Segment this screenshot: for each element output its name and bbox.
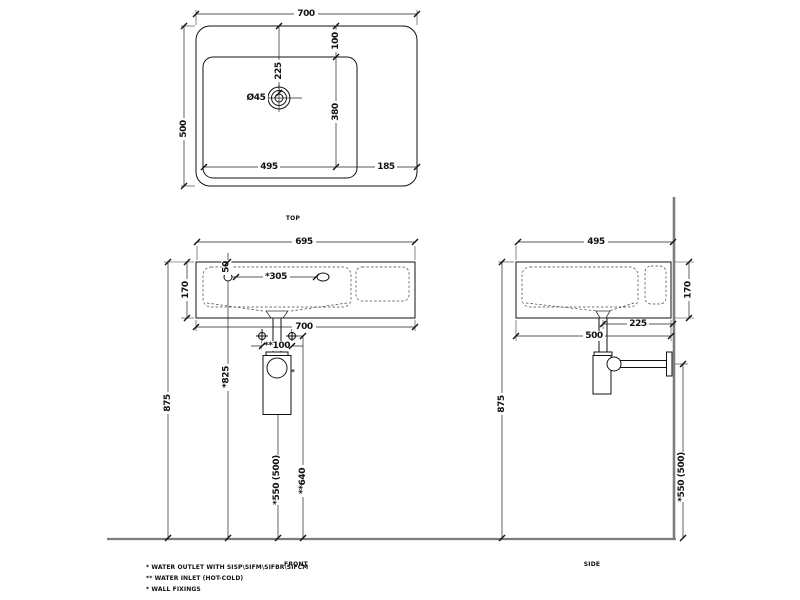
dim-hole-height: *825 [222,366,232,388]
dim-inlet-height: **640 [298,468,308,494]
dim-front-hole-below-rim: 50 [222,261,232,273]
dim-front-rim-height: 875 [163,394,173,412]
dim-side-drain-to-wall: 225 [629,319,647,329]
notes-block: * WATER OUTLET WITH SISP\SIFM\SIFBR\SIFC… [146,564,308,593]
dim-side-depth: 500 [585,331,603,341]
dim-front-hole-span: *305 [265,272,287,282]
dim-top-bowl-inset: 100 [331,32,341,50]
outlet-marker: * [291,368,295,376]
trap-flange-side [594,352,612,356]
top-view-title: TOP [286,215,301,222]
dim-drain-diameter: Ø45 [247,92,266,103]
basin-side [516,262,671,318]
dim-top-bowl-width: 495 [260,162,278,172]
dim-side-rim-depth: 495 [587,237,605,247]
dim-side-outlet-height: *550 (500) [677,452,687,502]
note-water-inlet: ** WATER INLET (HOT-COLD) [146,575,243,582]
basin-technical-drawing: 700 500 100 225 380 Ø45 495 185 TOP [0,0,800,600]
dim-top-bowl-depth: 380 [331,103,341,121]
dim-top-deck-width: 185 [377,162,395,172]
dim-front-outlet-height: *550 (500) [272,455,282,505]
dim-side-height: 170 [684,281,694,299]
dim-front-width: 700 [295,322,313,332]
dim-front-rim-width: 695 [295,237,313,247]
technical-drawing-page: 700 500 100 225 380 Ø45 495 185 TOP [0,0,800,600]
dim-top-width: 700 [297,9,315,19]
dim-side-rim-height: 875 [497,395,507,413]
side-view: 495 170 225 500 875 *550 (500) SIDE [497,237,695,568]
dim-front-height: 170 [181,281,191,299]
dim-inlet-spacing: **100 [264,341,290,351]
wall-flange-side [667,352,673,376]
top-view: 700 500 100 225 380 Ø45 495 185 TOP [179,9,420,222]
front-view: * [163,237,419,568]
dim-top-drain-offset: 225 [274,62,284,80]
dim-top-depth: 500 [179,120,189,138]
note-wall-fixings: * WALL FIXINGS [146,586,201,593]
trap-flange-front [266,352,288,356]
note-water-outlet: * WATER OUTLET WITH SISP\SIFM\SIFBR\SIFC… [146,564,308,571]
trap-joint-side [607,357,621,371]
side-view-title: SIDE [584,561,600,568]
